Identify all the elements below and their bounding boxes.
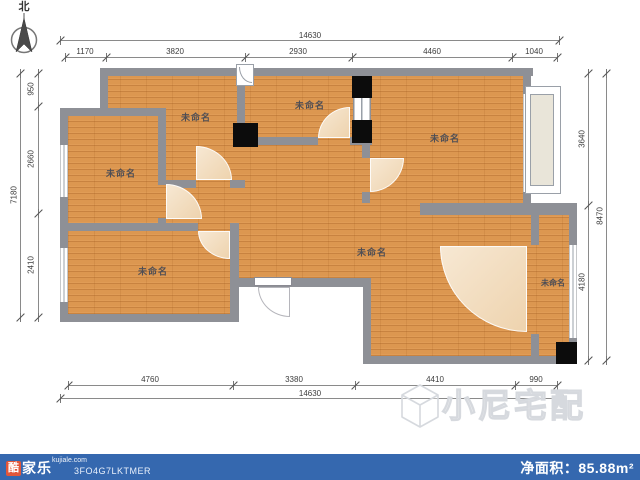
dim-tick (16, 313, 25, 322)
dim-line (65, 57, 557, 58)
wall (362, 143, 370, 158)
dim-tick (602, 69, 611, 78)
bay-window-sill (530, 94, 554, 186)
wall (420, 203, 577, 215)
brand-domain: kujiale.com (52, 457, 87, 464)
dim-tick (102, 53, 111, 62)
dim-line (60, 40, 559, 41)
dim-tick (241, 53, 250, 62)
column (233, 123, 258, 147)
window (569, 245, 577, 338)
wall (569, 215, 577, 245)
dim-label: 2930 (287, 47, 309, 56)
dim-label: 3640 (578, 128, 587, 150)
north-arrow-icon (7, 13, 41, 57)
dim-tick (602, 356, 611, 365)
wall (100, 68, 533, 76)
column (352, 76, 372, 98)
dim-tick (56, 394, 65, 403)
floorplan-canvas: 北 (0, 0, 640, 480)
room-label: 未命名 (430, 132, 460, 145)
outside-area (56, 322, 239, 362)
dim-label: 1040 (523, 47, 545, 56)
wall (158, 218, 166, 226)
dim-tick (229, 381, 238, 390)
wall (60, 314, 239, 322)
entrance-alcove (239, 287, 363, 357)
wall (362, 192, 370, 203)
net-area: 净面积：85.88m² (520, 458, 634, 478)
wall (158, 116, 166, 185)
wall (363, 278, 371, 364)
dim-tick (34, 209, 43, 218)
window (353, 98, 371, 122)
wall (531, 334, 539, 356)
window (60, 145, 68, 197)
dim-tick (584, 69, 593, 78)
dim-tick (56, 36, 65, 45)
brand-badge: 酷 (6, 461, 21, 476)
dim-tick (61, 53, 70, 62)
dim-line (588, 73, 589, 360)
dim-label-total-right: 8470 (596, 205, 605, 227)
dim-label: 3380 (283, 375, 305, 384)
net-area-value: 85.88m² (578, 460, 634, 476)
brand-name: 家乐 (22, 458, 52, 478)
dim-tick (555, 36, 564, 45)
room-label: 未命名 (181, 111, 211, 124)
room-label: 未命名 (295, 99, 325, 112)
dim-line (60, 398, 559, 399)
dim-tick (351, 381, 360, 390)
dim-label: 990 (527, 375, 544, 384)
dim-tick (348, 53, 357, 62)
wall (230, 180, 245, 188)
wall (230, 223, 239, 322)
wall (230, 278, 371, 287)
window (60, 248, 68, 302)
dim-tick (553, 381, 562, 390)
column (556, 342, 577, 364)
wall (60, 108, 166, 116)
dim-tick (16, 69, 25, 78)
column (352, 120, 372, 143)
wall (363, 356, 577, 364)
kujiale-logo: 酷 家乐 (6, 458, 52, 478)
cube-logo-icon (398, 382, 442, 430)
dim-label: 4410 (424, 375, 446, 384)
dim-tick (584, 201, 593, 210)
dim-label-total-left: 7180 (10, 184, 19, 206)
entry-door-leaf (254, 277, 292, 286)
room-label: 未命名 (357, 246, 387, 259)
dim-label: 2410 (27, 254, 36, 276)
wall (60, 223, 198, 231)
dim-label: 4760 (139, 375, 161, 384)
dim-line (68, 385, 557, 386)
dim-label: 2660 (27, 148, 36, 170)
dim-label: 4180 (578, 271, 587, 293)
dim-tick (34, 313, 43, 322)
door-symbol (236, 64, 254, 86)
outside-area (56, 60, 100, 108)
dim-label: 950 (27, 80, 36, 97)
dim-label-total-bottom: 14630 (297, 389, 323, 398)
room-label: 未命名 (106, 167, 136, 180)
dim-label-total-top: 14630 (297, 31, 323, 40)
dim-tick (508, 53, 517, 62)
room-label: 未命名 (541, 278, 565, 289)
dim-tick (555, 394, 564, 403)
dim-line (606, 73, 607, 360)
dim-line (20, 73, 21, 317)
north-compass: 北 (4, 1, 44, 62)
dim-tick (584, 356, 593, 365)
plan-code: 3FO4G7LKTMER (74, 466, 151, 476)
net-area-label: 净面积： (520, 460, 578, 476)
wall (531, 215, 539, 245)
dim-tick (34, 102, 43, 111)
dim-tick (34, 69, 43, 78)
dim-tick (511, 381, 520, 390)
dim-label: 3820 (164, 47, 186, 56)
room-label: 未命名 (138, 265, 168, 278)
dim-label: 1170 (74, 47, 95, 56)
dim-label: 4460 (421, 47, 443, 56)
dim-tick (553, 53, 562, 62)
dim-tick (64, 381, 73, 390)
north-label: 北 (4, 1, 44, 13)
footer-bar: 酷 家乐 kujiale.com 3FO4G7LKTMER 净面积：85.88m… (0, 454, 640, 480)
